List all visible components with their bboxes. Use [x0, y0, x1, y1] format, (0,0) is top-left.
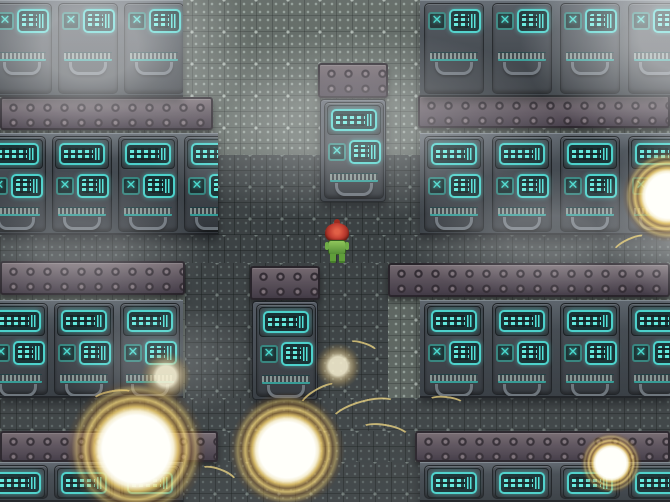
- screen-wide: [635, 310, 670, 332]
- screen-bars-icon: [35, 346, 41, 360]
- machine-unit[interactable]: [0, 465, 48, 499]
- vent-grille-icon: [634, 374, 670, 383]
- screen-bars-icon: [535, 477, 541, 489]
- machine-unit[interactable]: ✕: [560, 303, 620, 395]
- machine-unit[interactable]: [492, 465, 552, 499]
- screen-segments: [18, 346, 33, 360]
- u-handle-icon: [503, 384, 541, 397]
- screen-small: [653, 341, 670, 365]
- game-viewport[interactable]: ✕✕✕✕✕✕✕✕✕✕✕✕✕✕✕✕✕✕✕✕✕✕✕✕: [0, 0, 670, 502]
- vent-grille-icon: [430, 374, 478, 383]
- display-panel: [495, 468, 549, 498]
- screen-segments: [572, 315, 601, 327]
- screen-segments: [436, 477, 465, 489]
- screen-wide: [567, 143, 613, 165]
- screen-bars-icon: [471, 346, 477, 360]
- x-icon: ✕: [496, 344, 514, 362]
- explosion-effect: [580, 432, 642, 494]
- screen-segments: [658, 346, 670, 360]
- screen-segments: [504, 315, 533, 327]
- pillar-door-bottom[interactable]: ✕: [250, 266, 320, 400]
- screen-wide: [567, 310, 613, 332]
- screen-wide: [431, 310, 477, 332]
- x-icon: ✕: [428, 344, 446, 362]
- screen-bars-icon: [603, 315, 609, 327]
- screen-segments: [454, 346, 469, 360]
- pillar-cap: [250, 266, 320, 300]
- u-handle-icon: [571, 384, 609, 397]
- screen-bars-icon: [535, 315, 541, 327]
- player-arm-right: [345, 242, 349, 250]
- x-icon: ✕: [496, 12, 514, 30]
- pillar-body: ✕: [252, 301, 318, 400]
- screen-bars-icon: [539, 346, 545, 360]
- screen-segments: [640, 315, 669, 327]
- screen-bars-icon: [31, 315, 37, 327]
- vent-grille-icon: [498, 374, 546, 383]
- screen-wide: [431, 472, 477, 494]
- screen-segments: [286, 347, 301, 361]
- player-leg-right: [339, 254, 345, 263]
- screen-small: [13, 341, 45, 365]
- display-panel: [495, 306, 549, 336]
- machine-bank-lower-right: ✕✕✕✕: [420, 300, 670, 398]
- x-icon: ✕: [0, 344, 10, 362]
- vent-grille-icon: [0, 374, 42, 383]
- screen-small: [449, 341, 481, 365]
- screen-wide: [635, 472, 670, 494]
- machine-unit[interactable]: ✕: [492, 303, 552, 395]
- screen-segments: [522, 346, 537, 360]
- screen-segments: [436, 315, 465, 327]
- x-icon: ✕: [632, 344, 650, 362]
- screen-wide: [499, 472, 545, 494]
- screen-bars-icon: [607, 346, 613, 360]
- screen-bars-icon: [303, 347, 309, 361]
- display-panel: [631, 306, 670, 336]
- screen-wide: [0, 472, 41, 494]
- display-panel: [427, 306, 481, 336]
- display-panel: [563, 306, 617, 336]
- screen-bars-icon: [603, 148, 609, 160]
- screen-small: [449, 9, 481, 33]
- screen-segments: [268, 316, 297, 328]
- screen-bars-icon: [299, 316, 305, 328]
- u-handle-icon: [0, 384, 37, 397]
- screen-segments: [0, 477, 29, 489]
- screen-segments: [590, 346, 605, 360]
- u-handle-icon: [639, 384, 670, 397]
- screen-bars-icon: [467, 315, 473, 327]
- machine-unit[interactable]: ✕: [256, 304, 316, 397]
- x-icon: ✕: [564, 344, 582, 362]
- explosion-effect: [141, 351, 191, 401]
- display-panel: [0, 468, 45, 498]
- explosion-effect: [315, 343, 361, 389]
- x-icon: ✕: [260, 345, 278, 363]
- screen-bars-icon: [31, 477, 37, 489]
- screen-wide: [263, 311, 309, 333]
- screen-segments: [0, 148, 27, 160]
- screen-small: [281, 342, 313, 366]
- player-body: [328, 240, 346, 255]
- machine-unit[interactable]: [424, 465, 484, 499]
- screen-segments: [572, 148, 601, 160]
- vent-grille-icon: [566, 374, 614, 383]
- explosion-effect: [229, 392, 345, 502]
- player-character: [325, 219, 349, 264]
- machine-unit[interactable]: ✕: [628, 303, 670, 395]
- vent-grille-icon: [262, 375, 310, 384]
- display-panel: [427, 468, 481, 498]
- screen-segments: [504, 477, 533, 489]
- screen-segments: [640, 477, 669, 489]
- machine-unit[interactable]: ✕: [424, 303, 484, 395]
- screen-segments: [0, 315, 29, 327]
- player-leg-left: [330, 254, 336, 263]
- screen-segments: [454, 14, 469, 28]
- screen-small: [585, 341, 617, 365]
- screen-bars-icon: [467, 477, 473, 489]
- screen-bars-icon: [471, 14, 477, 28]
- player-arm-left: [325, 242, 329, 250]
- screen-wide: [499, 310, 545, 332]
- screen-small: [517, 341, 549, 365]
- display-panel: [259, 307, 313, 337]
- machine-unit[interactable]: ✕: [0, 303, 48, 395]
- x-icon: ✕: [428, 12, 446, 30]
